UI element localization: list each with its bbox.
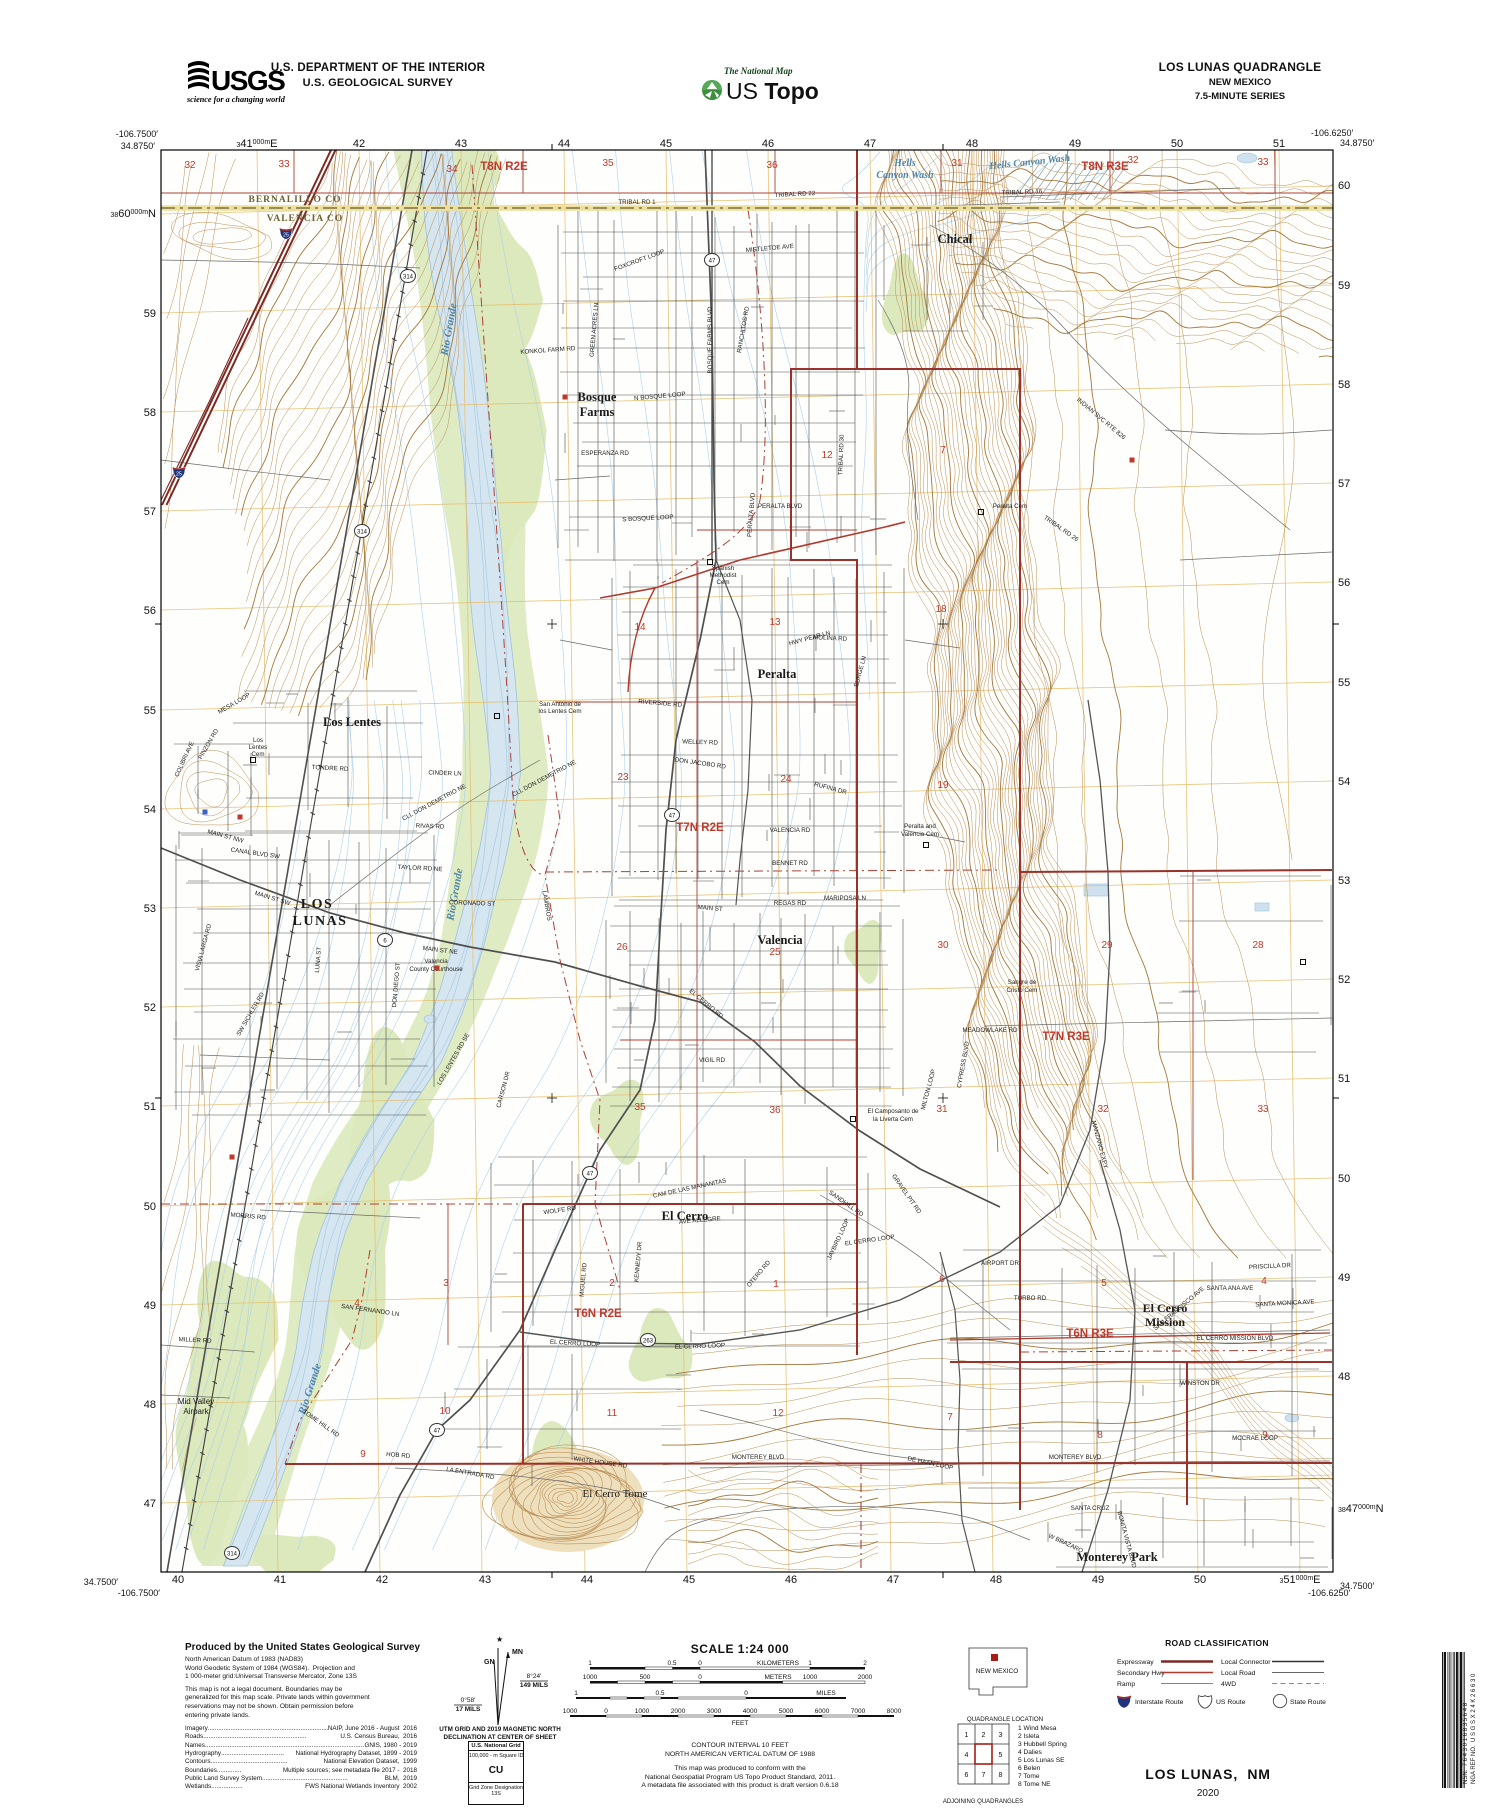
svg-text:5000: 5000 [779, 1708, 794, 1715]
svg-text:10: 10 [439, 1406, 451, 1417]
svg-text:0: 0 [744, 1690, 748, 1697]
svg-text:29: 29 [1101, 940, 1113, 951]
svg-text:4: 4 [965, 1752, 969, 1759]
svg-text:1000: 1000 [635, 1708, 650, 1715]
svg-text:48: 48 [144, 1399, 156, 1411]
svg-text:MONTEREY BLVD: MONTEREY BLVD [732, 1454, 785, 1461]
svg-text:la Liverta Cem: la Liverta Cem [873, 1116, 913, 1123]
svg-text:-106.6250′: -106.6250′ [1308, 1588, 1351, 1598]
svg-text:7 Tome: 7 Tome [1018, 1773, 1040, 1780]
svg-text:25: 25 [176, 472, 182, 478]
svg-text:MONTEREY BLVD: MONTEREY BLVD [1049, 1454, 1102, 1461]
svg-text:1000: 1000 [803, 1674, 818, 1681]
svg-text:60: 60 [1338, 180, 1350, 192]
svg-text:52: 52 [144, 1002, 156, 1014]
svg-text:46: 46 [762, 138, 774, 150]
svg-text:Airpark: Airpark [183, 1407, 209, 1416]
svg-text:NGA REF NO. U S G S X 2 4 K 2: NGA REF NO. U S G S X 2 4 K 2 6 6 3 0 [1471, 1673, 1477, 1784]
svg-text:23: 23 [617, 772, 629, 783]
svg-text:49: 49 [1092, 1574, 1104, 1586]
svg-text:4000: 4000 [743, 1708, 758, 1715]
svg-text:34.8750′: 34.8750′ [1340, 138, 1375, 148]
svg-text:7: 7 [982, 1772, 986, 1779]
svg-text:SANTA CRUZ: SANTA CRUZ [1071, 1505, 1110, 1512]
svg-text:EL CERRO MISSION BLVD: EL CERRO MISSION BLVD [1197, 1335, 1274, 1342]
svg-text:2: 2 [863, 1660, 867, 1667]
svg-text:49: 49 [1069, 138, 1081, 150]
svg-text:Canyon Wash: Canyon Wash [876, 170, 934, 181]
svg-text:26: 26 [616, 942, 628, 953]
svg-text:50: 50 [1194, 1574, 1206, 1586]
svg-text:45: 45 [683, 1574, 695, 1586]
svg-text:TRIBAL RD 30: TRIBAL RD 30 [837, 434, 845, 475]
svg-text:MN: MN [512, 1649, 523, 1656]
svg-text:Spanish: Spanish [712, 565, 735, 572]
svg-text:48: 48 [1338, 1371, 1350, 1383]
svg-text:53: 53 [144, 903, 156, 915]
svg-text:PERALTA BLVD: PERALTA BLVD [758, 503, 803, 510]
svg-text:FEET: FEET [732, 1720, 749, 1727]
svg-text:El Camposanto de: El Camposanto de [868, 1108, 919, 1115]
svg-text:MILES: MILES [816, 1690, 836, 1697]
svg-text:12: 12 [821, 450, 833, 461]
svg-text:TRIBAL RD 1: TRIBAL RD 1 [618, 199, 656, 206]
svg-text:0.5: 0.5 [667, 1660, 676, 1667]
svg-text:55: 55 [1338, 677, 1350, 689]
svg-text:2 Isleta: 2 Isleta [1018, 1733, 1040, 1740]
svg-text:AIRPORT DR: AIRPORT DR [981, 1260, 1019, 1267]
svg-text:55: 55 [144, 705, 156, 717]
svg-text:1: 1 [773, 1279, 779, 1290]
svg-text:8 Tome NE: 8 Tome NE [1018, 1781, 1051, 1788]
svg-text:5 Los Lunas SE: 5 Los Lunas SE [1018, 1757, 1065, 1764]
svg-text:3000: 3000 [707, 1708, 722, 1715]
svg-text:1: 1 [588, 1660, 592, 1667]
svg-text:54: 54 [1338, 776, 1350, 788]
svg-text:263: 263 [643, 1338, 654, 1344]
svg-text:9: 9 [360, 1449, 366, 1460]
svg-text:State Route: State Route [1290, 1699, 1326, 1706]
svg-text:2: 2 [609, 1278, 615, 1289]
svg-text:56: 56 [144, 605, 156, 617]
svg-text:WELLEY RD: WELLEY RD [682, 738, 718, 746]
svg-text:T6N R2E: T6N R2E [574, 1308, 622, 1320]
svg-text:BOSQUE FARMS BLVD: BOSQUE FARMS BLVD [707, 306, 714, 373]
svg-text:36: 36 [769, 1105, 781, 1116]
svg-text:BENNET RD: BENNET RD [772, 860, 808, 867]
svg-text:6: 6 [965, 1772, 969, 1779]
svg-text:47: 47 [434, 1428, 441, 1434]
svg-text:1: 1 [965, 1732, 969, 1739]
svg-text:LOS: LOS [301, 897, 334, 912]
svg-text:44: 44 [558, 138, 570, 150]
svg-text:34.7500′: 34.7500′ [84, 1577, 119, 1587]
svg-text:43: 43 [479, 1574, 491, 1586]
svg-text:Peralta and: Peralta and [904, 823, 936, 830]
svg-text:47: 47 [669, 813, 676, 819]
svg-text:CINDER LN: CINDER LN [428, 769, 462, 777]
svg-text:31: 31 [936, 1104, 948, 1115]
svg-text:0: 0 [698, 1674, 702, 1681]
svg-text:42: 42 [376, 1574, 388, 1586]
svg-text:43: 43 [455, 138, 467, 150]
svg-text:Cem: Cem [251, 751, 264, 758]
svg-text:3: 3 [999, 1732, 1003, 1739]
svg-text:0°58′: 0°58′ [461, 1696, 476, 1704]
svg-text:MEADOWLAKE RD: MEADOWLAKE RD [962, 1027, 1018, 1034]
svg-text:50: 50 [1171, 138, 1183, 150]
svg-text:6 Belen: 6 Belen [1018, 1765, 1041, 1772]
svg-text:Peralta: Peralta [758, 667, 798, 681]
svg-text:3860000mN: 3860000mN [110, 208, 156, 220]
svg-text:TRIBAL RD 16: TRIBAL RD 16 [1001, 188, 1042, 196]
svg-text:Interstate Route: Interstate Route [1135, 1699, 1184, 1706]
svg-text:54: 54 [144, 804, 156, 816]
svg-text:351000mE: 351000mE [1279, 1574, 1320, 1586]
svg-text:6000: 6000 [815, 1708, 830, 1715]
svg-text:RIVAS RD: RIVAS RD [416, 823, 446, 831]
svg-text:34.8750′: 34.8750′ [121, 141, 156, 151]
svg-text:T8N R2E: T8N R2E [480, 161, 528, 173]
svg-text:7000: 7000 [851, 1708, 866, 1715]
svg-text:33: 33 [1257, 157, 1269, 168]
svg-text:34: 34 [446, 164, 458, 175]
svg-text:US Route: US Route [1216, 1699, 1246, 1706]
svg-text:BERNALILLO CO: BERNALILLO CO [249, 195, 342, 205]
svg-text:53: 53 [1338, 875, 1350, 887]
svg-text:Valencia Cem: Valencia Cem [901, 831, 939, 838]
svg-text:Bosque: Bosque [578, 390, 617, 404]
svg-text:7: 7 [940, 445, 946, 456]
svg-text:47: 47 [144, 1498, 156, 1510]
svg-text:51: 51 [1338, 1073, 1350, 1085]
svg-text:13: 13 [769, 617, 781, 628]
svg-text:314: 314 [357, 529, 368, 535]
svg-text:T8N R3E: T8N R3E [1081, 161, 1129, 173]
svg-text:4: 4 [1261, 1276, 1267, 1287]
svg-text:0: 0 [604, 1708, 608, 1715]
svg-text:33: 33 [1257, 1104, 1269, 1115]
svg-text:Cem: Cem [716, 579, 729, 586]
svg-text:149 MILS: 149 MILS [520, 1682, 549, 1689]
svg-text:Peralta Cem: Peralta Cem [993, 503, 1027, 510]
svg-text:Ramp: Ramp [1117, 1681, 1135, 1688]
svg-text:51: 51 [1273, 138, 1285, 150]
svg-text:59: 59 [144, 308, 156, 320]
svg-text:Lentes: Lentes [249, 744, 268, 751]
svg-text:los Lentes Cem: los Lentes Cem [539, 708, 582, 715]
svg-text:Expressway: Expressway [1117, 1659, 1154, 1666]
svg-text:METERS: METERS [764, 1674, 792, 1681]
svg-text:56: 56 [1338, 577, 1350, 589]
svg-text:El Cerro Tome: El Cerro Tome [582, 1488, 647, 1500]
svg-text:8°24′: 8°24′ [527, 1672, 542, 1680]
svg-text:Mid Valley: Mid Valley [178, 1397, 214, 1406]
svg-text:Los Lentes: Los Lentes [323, 715, 381, 729]
svg-text:2000: 2000 [671, 1708, 686, 1715]
svg-text:42: 42 [353, 138, 365, 150]
svg-text:1 Wind Mesa: 1 Wind Mesa [1018, 1725, 1057, 1732]
svg-text:MCCRAE LOOP: MCCRAE LOOP [1232, 1435, 1278, 1442]
svg-text:19: 19 [937, 780, 949, 791]
svg-text:14: 14 [634, 622, 646, 633]
svg-text:3847000mN: 3847000mN [1338, 1503, 1384, 1515]
svg-text:1000: 1000 [583, 1674, 598, 1681]
svg-text:44: 44 [581, 1574, 593, 1586]
svg-text:Secondary Hwy: Secondary Hwy [1117, 1670, 1165, 1677]
svg-text:47: 47 [887, 1574, 899, 1586]
svg-text:48: 48 [990, 1574, 1002, 1586]
svg-text:8: 8 [1097, 1430, 1103, 1441]
svg-text:32: 32 [1127, 155, 1139, 166]
svg-text:1: 1 [574, 1690, 578, 1697]
svg-text:Local Road: Local Road [1221, 1670, 1256, 1677]
svg-text:3 Hubbell Spring: 3 Hubbell Spring [1018, 1741, 1067, 1748]
svg-text:Hells: Hells [893, 158, 916, 169]
svg-text:NEW MEXICO: NEW MEXICO [976, 1668, 1019, 1675]
svg-text:25: 25 [769, 947, 781, 958]
svg-text:NSN. 7 6 4 3 0 1 6 8 3 5 6 4: NSN. 7 6 4 3 0 1 6 8 3 5 6 4 8 [1463, 1702, 1469, 1784]
svg-text:T7N R2E: T7N R2E [676, 822, 724, 834]
svg-text:2000: 2000 [858, 1674, 873, 1681]
svg-text:VALENCIA CO: VALENCIA CO [267, 214, 344, 224]
svg-text:Local Connector: Local Connector [1221, 1659, 1271, 1666]
svg-text:0: 0 [698, 1660, 702, 1667]
svg-text:59: 59 [1338, 280, 1350, 292]
svg-text:4 Dalies: 4 Dalies [1018, 1749, 1043, 1756]
svg-text:45: 45 [660, 138, 672, 150]
svg-text:WINSTON DR: WINSTON DR [1180, 1380, 1220, 1387]
svg-text:ESPERANZA RD: ESPERANZA RD [581, 450, 629, 457]
svg-text:52: 52 [1338, 974, 1350, 986]
svg-text:57: 57 [144, 506, 156, 518]
svg-text:2: 2 [982, 1732, 986, 1739]
svg-text:314: 314 [227, 1551, 238, 1557]
svg-text:San Antonio de: San Antonio de [539, 701, 582, 708]
svg-text:VALENCIA RD: VALENCIA RD [770, 827, 811, 834]
svg-text:24: 24 [780, 774, 792, 785]
svg-text:8: 8 [999, 1772, 1003, 1779]
svg-text:33: 33 [278, 159, 290, 170]
svg-text:49: 49 [1338, 1272, 1350, 1284]
svg-text:28: 28 [1252, 940, 1264, 951]
svg-text:5: 5 [1101, 1278, 1107, 1289]
svg-text:6: 6 [939, 1274, 945, 1285]
svg-text:314: 314 [403, 274, 414, 280]
svg-text:48: 48 [966, 138, 978, 150]
svg-text:35: 35 [602, 158, 614, 169]
svg-text:GN: GN [484, 1659, 495, 1666]
svg-text:500: 500 [640, 1674, 651, 1681]
svg-text:Cristo Cem: Cristo Cem [1007, 987, 1038, 994]
svg-text:Valencia: Valencia [424, 958, 448, 965]
svg-text:Farms: Farms [580, 405, 615, 419]
svg-text:★: ★ [496, 1635, 503, 1644]
svg-text:T7N R3E: T7N R3E [1042, 1031, 1090, 1043]
svg-text:31: 31 [951, 158, 963, 169]
svg-text:LUNAS: LUNAS [293, 914, 348, 929]
svg-text:REGAS RD: REGAS RD [774, 900, 807, 907]
svg-text:T6N R3E: T6N R3E [1066, 1328, 1114, 1340]
svg-text:-106.7500′: -106.7500′ [118, 1588, 161, 1598]
svg-text:57: 57 [1338, 478, 1350, 490]
svg-text:47: 47 [864, 138, 876, 150]
svg-text:32: 32 [184, 160, 196, 171]
svg-text:4WD: 4WD [1221, 1681, 1236, 1688]
svg-text:17 MILS: 17 MILS [456, 1706, 481, 1713]
svg-text:47: 47 [587, 1171, 594, 1177]
svg-text:MARIPOSA LN: MARIPOSA LN [824, 895, 866, 902]
svg-text:341000mE: 341000mE [236, 138, 277, 150]
svg-text:36: 36 [766, 160, 778, 171]
svg-text:18: 18 [935, 604, 947, 615]
svg-text:11: 11 [607, 1408, 618, 1419]
svg-text:Sangre de: Sangre de [1008, 979, 1037, 986]
svg-text:35: 35 [634, 1102, 646, 1113]
svg-text:Valencia: Valencia [757, 933, 803, 947]
svg-text:3: 3 [443, 1278, 449, 1289]
svg-text:Los: Los [253, 737, 263, 744]
svg-text:51: 51 [144, 1101, 156, 1113]
svg-text:5: 5 [999, 1752, 1003, 1759]
svg-text:SANTA ANA AVE: SANTA ANA AVE [1207, 1285, 1254, 1292]
svg-text:58: 58 [1338, 379, 1350, 391]
svg-text:Chical: Chical [938, 232, 973, 246]
svg-text:TURBO RD: TURBO RD [1014, 1295, 1047, 1302]
svg-text:0.5: 0.5 [655, 1690, 664, 1697]
svg-text:58: 58 [144, 407, 156, 419]
svg-text:50: 50 [1338, 1173, 1350, 1185]
svg-text:1000: 1000 [563, 1708, 578, 1715]
svg-text:46: 46 [785, 1574, 797, 1586]
svg-text:40: 40 [172, 1574, 184, 1586]
svg-text:41: 41 [274, 1574, 286, 1586]
svg-text:12: 12 [772, 1408, 784, 1419]
svg-text:1: 1 [808, 1660, 812, 1667]
svg-text:8000: 8000 [887, 1708, 902, 1715]
svg-text:7: 7 [947, 1412, 953, 1423]
svg-text:50: 50 [144, 1201, 156, 1213]
svg-text:-106.6250′: -106.6250′ [1311, 128, 1354, 138]
svg-text:Monterey Park: Monterey Park [1076, 1550, 1157, 1564]
svg-text:Methodist: Methodist [710, 572, 737, 579]
svg-text:30: 30 [937, 940, 949, 951]
svg-text:KILOMETERS: KILOMETERS [757, 1660, 800, 1667]
svg-text:VIGIL RD: VIGIL RD [699, 1057, 726, 1064]
svg-text:47: 47 [709, 258, 716, 264]
svg-text:-106.7500′: -106.7500′ [116, 129, 159, 139]
svg-text:49: 49 [144, 1300, 156, 1312]
svg-text:25: 25 [283, 233, 289, 239]
svg-text:32: 32 [1097, 1104, 1109, 1115]
